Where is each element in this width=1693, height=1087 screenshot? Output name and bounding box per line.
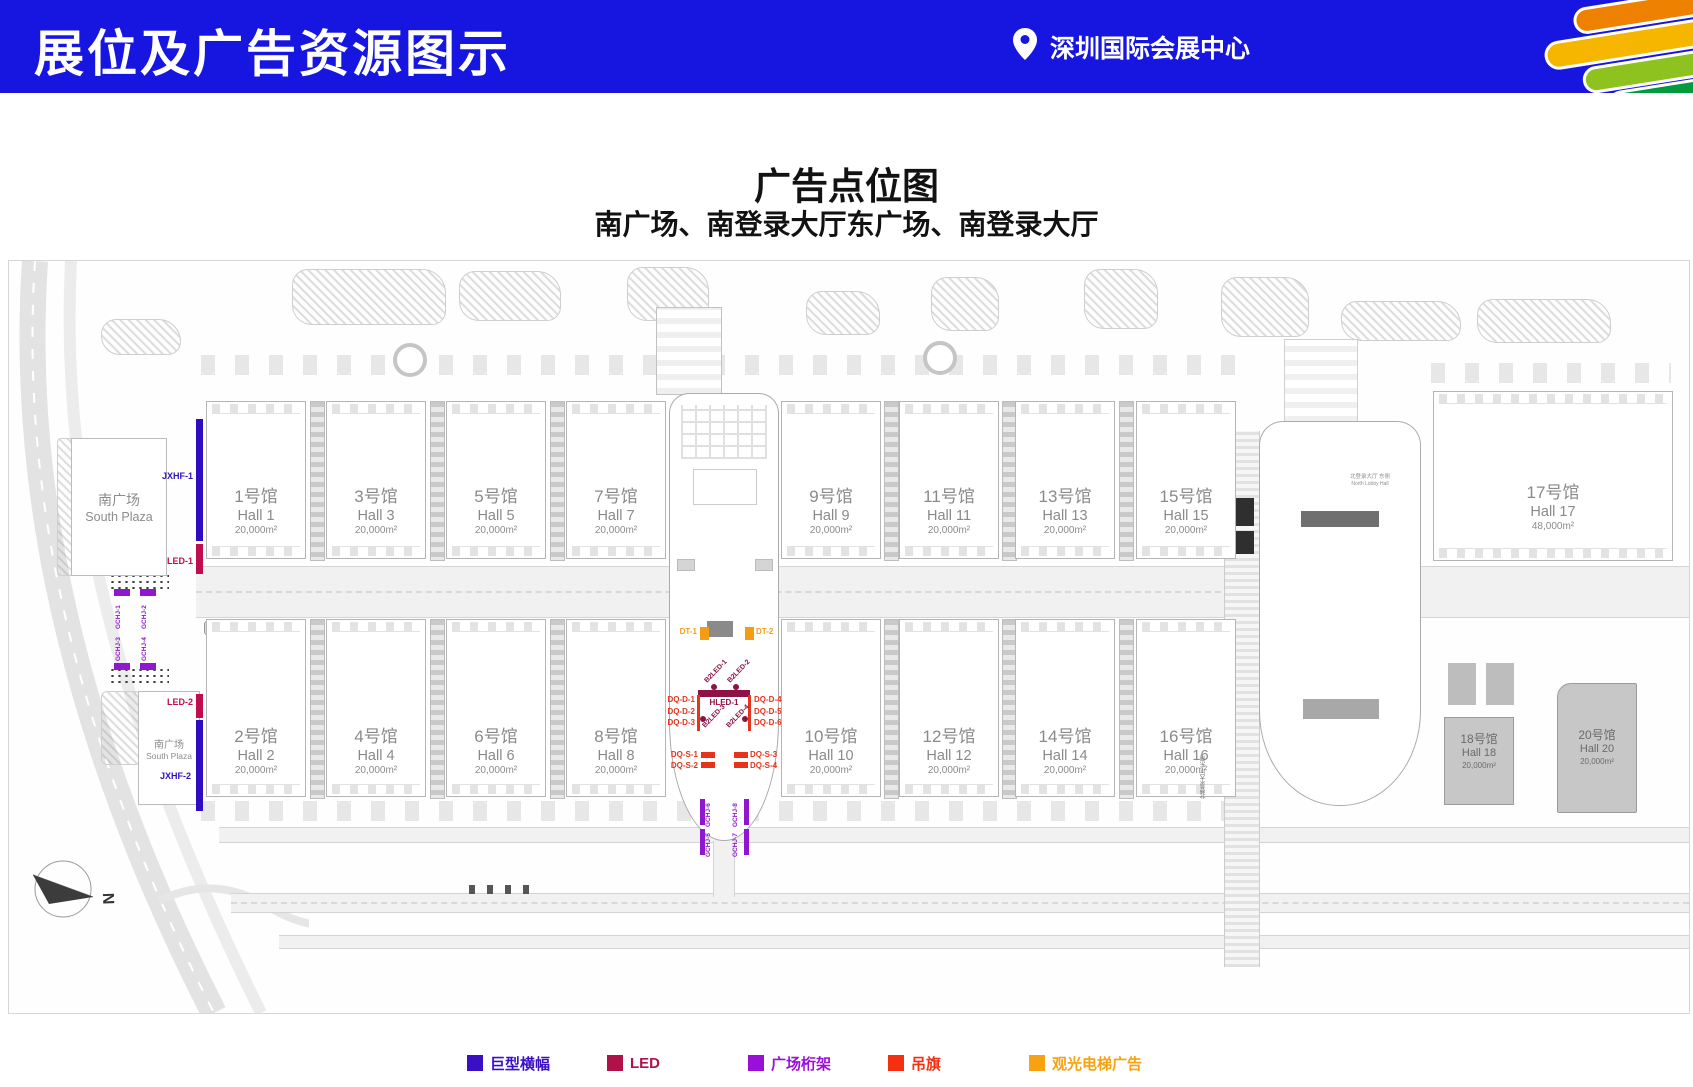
hall-5: 5号馆Hall 520,000m² xyxy=(446,401,546,559)
legend-label: 广场桁架 xyxy=(771,1053,831,1074)
compass-n: N xyxy=(99,893,116,905)
south-plaza-en: South Plaza xyxy=(85,510,152,524)
jxhf2-label: JXHF-2 xyxy=(129,772,191,781)
hall-area: 20,000m² xyxy=(928,765,970,778)
hall18-annex xyxy=(1448,663,1476,705)
hall-name: 18号馆 xyxy=(1460,732,1497,747)
hall-name-en: Hall 12 xyxy=(926,747,971,765)
compass-icon: N xyxy=(23,851,119,940)
north-lobby-lower xyxy=(1259,711,1421,806)
hall-7: 7号馆Hall 720,000m² xyxy=(566,401,666,559)
hall-name-en: Hall 10 xyxy=(808,747,853,765)
hall-name-en: Hall 3 xyxy=(357,507,394,525)
legend-swatch xyxy=(607,1055,623,1071)
dqd6-label: DQ-D-6 xyxy=(754,719,806,727)
bus-stop-ticks xyxy=(469,885,541,894)
brand-logo-icon xyxy=(1518,0,1693,93)
hled1-bar xyxy=(698,690,750,697)
concourse-east xyxy=(1421,566,1689,618)
dqs2-flag-bar xyxy=(701,762,715,768)
north-lobby-entrance xyxy=(1284,339,1358,423)
legend-item-plaza-truss: 广场桁架 xyxy=(748,1053,831,1073)
hall-20: 20号馆Hall 2020,000m² xyxy=(1557,683,1637,813)
hall-name-en: Hall 2 xyxy=(237,747,274,765)
gchj-truss-cap xyxy=(114,589,130,596)
hall-name: 12号馆 xyxy=(923,726,976,747)
dqd2-label: DQ-D-2 xyxy=(643,708,695,716)
gchj2-label: GCHJ-2 xyxy=(142,597,149,629)
south-plaza-bottom: 南广场 South Plaza xyxy=(138,691,200,805)
hall-name-en: Hall 15 xyxy=(1163,507,1208,525)
legend-swatch xyxy=(888,1055,904,1071)
south-plaza-top: 南广场 South Plaza xyxy=(71,438,167,576)
gchj7-label: GCHJ-7 xyxy=(733,827,740,857)
hall-name: 2号馆 xyxy=(234,726,277,747)
dqd5-label: DQ-D-5 xyxy=(754,708,806,716)
legend-label: 观光电梯广告 xyxy=(1052,1053,1142,1074)
site-plan: 北登录大厅 东侧 N 南广场 South Plaza 南广场 South Pla… xyxy=(8,260,1690,1014)
hall-area: 20,000m² xyxy=(475,765,517,778)
gchj6-label: GCHJ-6 xyxy=(706,797,713,827)
south-lobby-stage xyxy=(707,621,733,637)
landscape-hatch xyxy=(1084,269,1158,329)
hall-area: 20,000m² xyxy=(810,525,852,538)
landscape-hatch xyxy=(459,271,561,321)
hall-name-en: Hall 9 xyxy=(812,507,849,525)
south-lobby-kiosk xyxy=(755,559,773,571)
hall-name: 7号馆 xyxy=(594,486,637,507)
dqs4-flag-bar xyxy=(734,762,748,768)
dqd4-label: DQ-D-4 xyxy=(754,696,806,704)
gchj-truss-cap xyxy=(140,663,156,670)
gchj3-label: GCHJ-3 xyxy=(116,629,123,661)
hall-name: 3号馆 xyxy=(354,486,397,507)
hall-18: 18号馆Hall 1820,000m² xyxy=(1444,717,1514,805)
road xyxy=(279,935,1689,949)
tree-grid xyxy=(109,667,169,687)
dqs3-label: DQ-S-3 xyxy=(750,751,802,759)
hall-13: 13号馆Hall 1320,000m² xyxy=(1015,401,1115,559)
dt2-elevator-mark xyxy=(745,627,754,640)
hall-2: 2号馆Hall 220,000m² xyxy=(206,619,306,797)
link-corridor xyxy=(884,401,899,561)
landscape-hatch xyxy=(931,277,999,331)
hall-14: 14号馆Hall 1420,000m² xyxy=(1015,619,1115,797)
link-corridor xyxy=(550,401,565,561)
jxhf1-label: JXHF-1 xyxy=(131,472,193,481)
location-pin-icon xyxy=(1012,27,1038,66)
hall-1: 1号馆Hall 120,000m² xyxy=(206,401,306,559)
led2-label: LED-2 xyxy=(131,698,193,707)
hall-area: 20,000m² xyxy=(1165,525,1207,538)
hall-6: 6号馆Hall 620,000m² xyxy=(446,619,546,797)
north-lobby-label: 北登录大厅 东侧 North Lobby Hall xyxy=(1335,474,1405,488)
hall-area: 20,000m² xyxy=(235,525,277,538)
north-lobby-side-label: 北登录大厅 东侧 xyxy=(1201,737,1207,799)
legend-label: 巨型横幅 xyxy=(490,1053,550,1074)
legend-item-elevator-ad: 观光电梯广告 xyxy=(1029,1053,1142,1073)
hall-area: 20,000m² xyxy=(810,765,852,778)
landscape-hatch xyxy=(1341,301,1461,341)
hall-area: 20,000m² xyxy=(355,765,397,778)
hall-name-en: Hall 13 xyxy=(1042,507,1087,525)
hall-name: 6号馆 xyxy=(474,726,517,747)
hall-area: 20,000m² xyxy=(1044,765,1086,778)
link-corridor xyxy=(430,619,445,799)
dqs4-label: DQ-S-4 xyxy=(750,762,802,770)
north-lobby-block xyxy=(1303,699,1379,719)
hall-name-en: Hall 11 xyxy=(927,507,971,525)
north-lobby-label-cn: 北登录大厅 东侧 xyxy=(1335,474,1405,481)
south-plaza-cn: 南广场 xyxy=(98,490,140,510)
hall-name-en: Hall 17 xyxy=(1530,503,1575,521)
b2led1-dot xyxy=(711,684,717,690)
hall-area: 20,000m² xyxy=(928,525,970,538)
jxhf2-banner-bar xyxy=(196,720,203,811)
dqs1-label: DQ-S-1 xyxy=(646,751,698,759)
landscape-hatch xyxy=(1477,299,1611,343)
south-lobby-kiosk xyxy=(677,559,695,571)
hall-11: 11号馆Hall 1120,000m² xyxy=(899,401,999,559)
north-lobby-label-en: North Lobby Hall xyxy=(1335,481,1405,487)
hall-name: 13号馆 xyxy=(1039,486,1092,507)
hall-4: 4号馆Hall 420,000m² xyxy=(326,619,426,797)
led1-bar xyxy=(196,544,203,574)
hall-name-en: Hall 14 xyxy=(1042,747,1087,765)
dqs2-label: DQ-S-2 xyxy=(646,762,698,770)
hall-name-en: Hall 6 xyxy=(477,747,514,765)
hall-name-en: Hall 18 xyxy=(1462,747,1496,761)
landscape-hatch xyxy=(1221,277,1309,337)
legend-label: 吊旗 xyxy=(911,1053,941,1074)
road xyxy=(219,827,1689,843)
hall-area: 20,000m² xyxy=(475,525,517,538)
hall-name: 10号馆 xyxy=(805,726,858,747)
legend-item-hanging-flag: 吊旗 xyxy=(888,1053,941,1073)
dock-row xyxy=(1431,363,1671,383)
landscape-hatch xyxy=(806,291,880,335)
hall-area: 20,000m² xyxy=(1044,525,1086,538)
gchj4-label: GCHJ-4 xyxy=(142,629,149,661)
hall-area: 20,000m² xyxy=(355,525,397,538)
hall-16: 16号馆Hall 1620,000m² xyxy=(1136,619,1236,797)
gchj-truss-cap xyxy=(140,589,156,596)
led1-label: LED-1 xyxy=(131,557,193,566)
hall-name: 20号馆 xyxy=(1578,728,1615,743)
gchj8-truss-bar xyxy=(744,799,749,825)
legend-item-led: LED xyxy=(607,1053,660,1073)
dqs1-flag-bar xyxy=(701,752,715,758)
hall-area: 20,000m² xyxy=(1580,757,1614,767)
hall-area: 20,000m² xyxy=(595,765,637,778)
gchj8-label: GCHJ-8 xyxy=(733,797,740,827)
roundabout xyxy=(393,343,427,377)
link-corridor xyxy=(1119,401,1134,561)
legend-swatch xyxy=(467,1055,483,1071)
header-bar: 展位及广告资源图示 深圳国际会展中心 xyxy=(0,0,1693,93)
dqs3-flag-bar xyxy=(734,752,748,758)
hall-name-en: Hall 4 xyxy=(357,747,394,765)
south-plaza-en: South Plaza xyxy=(146,751,192,761)
dqd3-label: DQ-D-3 xyxy=(643,719,695,727)
hall-name: 14号馆 xyxy=(1039,726,1092,747)
dt1-label: DT-1 xyxy=(663,628,697,636)
legend-label: LED xyxy=(630,1055,660,1072)
hall-name: 5号馆 xyxy=(474,486,517,507)
hall-name-en: Hall 5 xyxy=(477,507,514,525)
landscape-hatch xyxy=(101,319,181,355)
gchj1-label: GCHJ-1 xyxy=(116,597,123,629)
dt2-label: DT-2 xyxy=(756,628,790,636)
hall-name: 1号馆 xyxy=(234,486,277,507)
north-lobby-upper xyxy=(1259,421,1421,711)
south-lobby-entrance xyxy=(656,307,722,395)
north-lobby-stage xyxy=(1301,511,1379,527)
venue-location: 深圳国际会展中心 xyxy=(1012,27,1250,66)
hall-name-en: Hall 7 xyxy=(597,507,634,525)
hall-9: 9号馆Hall 920,000m² xyxy=(781,401,881,559)
link-corridor xyxy=(884,619,899,799)
map-subtitle: 南广场、南登录大厅东广场、南登录大厅 xyxy=(0,203,1693,243)
south-lobby-grid xyxy=(681,405,767,459)
hall-name-en: Hall 1 xyxy=(237,507,274,525)
hall-area: 48,000m² xyxy=(1532,521,1574,534)
hall-name: 4号馆 xyxy=(354,726,397,747)
link-corridor xyxy=(310,401,325,561)
link-corridor xyxy=(550,619,565,799)
hall-15: 15号馆Hall 1520,000m² xyxy=(1136,401,1236,559)
b2led2-dot xyxy=(733,684,739,690)
hall-17: 17号馆Hall 1748,000m² xyxy=(1433,391,1673,561)
hall-12: 12号馆Hall 1220,000m² xyxy=(899,619,999,797)
link-corridor xyxy=(310,619,325,799)
link-corridor xyxy=(430,401,445,561)
legend-item-giant-banner: 巨型横幅 xyxy=(467,1053,550,1073)
hall-name: 15号馆 xyxy=(1160,486,1213,507)
hall-name: 11号馆 xyxy=(923,486,975,507)
hall-name: 17号馆 xyxy=(1527,482,1580,503)
link-corridor xyxy=(1119,619,1134,799)
hall-name: 9号馆 xyxy=(809,486,852,507)
hall-name: 8号馆 xyxy=(594,726,637,747)
dqd1-label: DQ-D-1 xyxy=(643,696,695,704)
legend-swatch xyxy=(1029,1055,1045,1071)
south-plaza-cn: 南广场 xyxy=(154,736,184,751)
hall-3: 3号馆Hall 320,000m² xyxy=(326,401,426,559)
jxhf1-banner-bar xyxy=(196,419,203,541)
gchj7-truss-bar xyxy=(744,829,749,855)
legend-swatch xyxy=(748,1055,764,1071)
gchj-truss-cap xyxy=(114,663,130,670)
b2led3-dot xyxy=(700,716,706,722)
b2led4-dot xyxy=(742,716,748,722)
hall-name-en: Hall 20 xyxy=(1580,743,1614,757)
page: 展位及广告资源图示 深圳国际会展中心 广告点位图 南广场、南登录大厅东广场、南登… xyxy=(0,0,1693,1087)
led2-bar xyxy=(196,694,203,718)
page-title: 展位及广告资源图示 xyxy=(34,14,511,86)
hall18-annex xyxy=(1486,663,1514,705)
gchj5-label: GCHJ-5 xyxy=(706,827,713,857)
dt1-elevator-mark xyxy=(700,627,709,640)
hall-area: 20,000m² xyxy=(1462,761,1496,771)
hall-area: 20,000m² xyxy=(235,765,277,778)
south-lobby-room xyxy=(693,469,757,505)
road-centerline xyxy=(231,902,1689,904)
roundabout xyxy=(923,341,957,375)
landscape-hatch xyxy=(292,269,446,325)
hall-area: 20,000m² xyxy=(595,525,637,538)
map-title: 广告点位图 xyxy=(0,156,1693,210)
hall-name-en: Hall 8 xyxy=(597,747,634,765)
venue-name: 深圳国际会展中心 xyxy=(1050,29,1250,65)
